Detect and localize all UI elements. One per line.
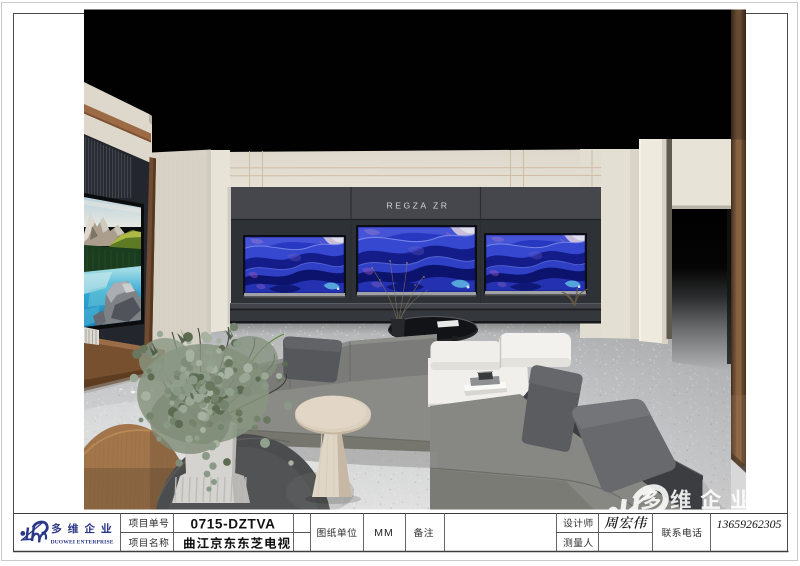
svg-text:MM: MM: [374, 527, 394, 539]
svg-text:DUOWEI ENTERPRISE: DUOWEI ENTERPRISE: [50, 540, 113, 546]
svg-text:13659262305: 13659262305: [717, 517, 782, 531]
svg-text:REGZA ZR: REGZA ZR: [387, 201, 450, 211]
svg-text:0715-DZTVA: 0715-DZTVA: [190, 517, 275, 532]
